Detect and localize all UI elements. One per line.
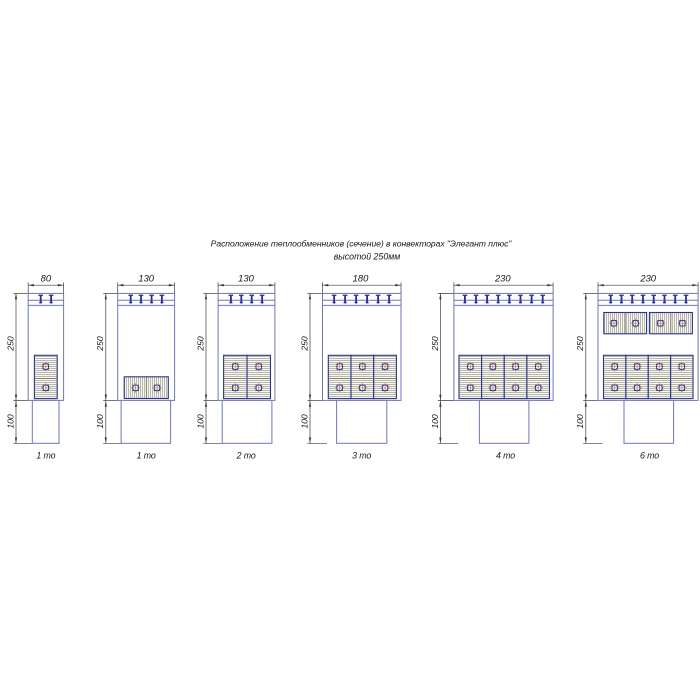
svg-text:100: 100 xyxy=(95,414,105,429)
svg-text:Расположение теплообменников (: Расположение теплообменников (сечение) в… xyxy=(211,238,513,248)
svg-text:100: 100 xyxy=(575,414,585,429)
svg-text:130: 130 xyxy=(138,273,154,284)
svg-text:100: 100 xyxy=(430,414,440,429)
svg-text:250: 250 xyxy=(299,336,309,352)
svg-text:2 то: 2 то xyxy=(236,451,256,461)
svg-text:180: 180 xyxy=(353,273,369,284)
svg-text:6 то: 6 то xyxy=(640,451,659,461)
svg-text:250: 250 xyxy=(5,336,15,352)
svg-text:4 то: 4 то xyxy=(496,451,515,461)
svg-text:250: 250 xyxy=(195,336,205,352)
svg-text:100: 100 xyxy=(195,414,205,429)
svg-text:250: 250 xyxy=(575,336,585,352)
svg-text:1 то: 1 то xyxy=(36,451,55,461)
svg-text:100: 100 xyxy=(299,414,309,429)
svg-text:250: 250 xyxy=(95,336,105,352)
svg-text:100: 100 xyxy=(5,414,15,429)
svg-text:3 то: 3 то xyxy=(352,451,371,461)
svg-text:250: 250 xyxy=(430,336,440,352)
svg-text:230: 230 xyxy=(494,273,511,284)
svg-text:высотой 250мм: высотой 250мм xyxy=(334,252,401,262)
svg-text:1 то: 1 то xyxy=(137,451,156,461)
svg-text:130: 130 xyxy=(238,273,254,284)
svg-text:80: 80 xyxy=(41,273,52,284)
svg-text:230: 230 xyxy=(639,273,656,284)
